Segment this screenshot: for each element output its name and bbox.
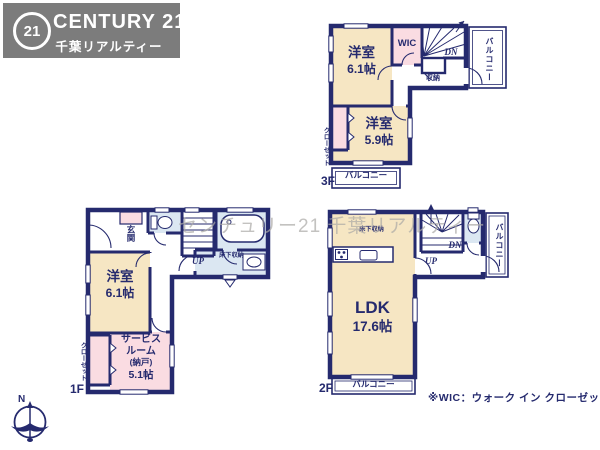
closet-label-3f: クローゼット [318,121,329,171]
floor-plan-page: 21 CENTURY 21 千葉リアルティー [0,0,600,450]
bedroom2-name-3f: 洋室 [348,116,410,132]
up-label-1f: UP [185,256,211,266]
bedroom1-name-3f: 洋室 [331,45,392,61]
floor-plan-3f: WIC DN 収納 洋室 6.1帖 洋室 5.9帖 バルコニー クローゼット バ… [318,18,518,198]
storage-label-3f: 収納 [418,75,448,83]
sink-icon [360,251,377,261]
bedroom1-size-3f: 6.1帖 [331,63,392,77]
down-label-2f: DN [442,240,468,250]
closet-area-3f [331,107,348,150]
closet-label-1f: クローゼット [75,335,86,387]
compass-north-label: N [18,394,25,405]
floor-storage-label-2f: 床下収納 [358,226,385,233]
balcony-bottom-label-2f: バルコニー [332,380,415,390]
wic-note: ※WIC：ウォーク イン クローゼット [428,390,598,405]
floor-label-1f: 1F [65,383,89,397]
kitchen-counter-icon [333,247,393,262]
floor-label-3f: 3F [316,175,340,189]
sink-icon-1f [243,254,265,270]
entrance-label: 玄関 [123,216,135,250]
century21-logo: 21 CENTURY 21 千葉リアルティー [3,3,180,58]
bedroom-size-1f: 6.1帖 [90,287,150,301]
balcony-right-label-3f: バルコニー [480,34,494,84]
service-room-line1: サービス [110,334,172,346]
closet-area-1f [90,335,110,385]
floor-plan-1f: 玄関 UP 床下収納 洋室 6.1帖 サービス ルーム (納戸) 5.1帖 クロ… [55,195,285,410]
wic-label: WIC [392,39,422,50]
balcony-right-label-2f: バルコニー [490,218,504,272]
company-name: 千葉リアルティー [49,36,169,55]
seal-number: 21 [24,23,41,40]
compass-drawing [8,396,54,448]
balcony-bottom-label-3f: バルコニー [332,171,400,181]
bedroom2-size-3f: 5.9帖 [348,134,410,148]
brand-name: CENTURY 21 [53,11,186,34]
bathtub-icon [221,215,264,242]
service-room-line3: (納戸) [110,358,172,368]
ldk-size-label: 17.6帖 [330,319,415,335]
ldk-area [330,212,415,377]
floor-plan-2f: 床下収納 DN UP LDK 17.6帖 バルコニー バルコニー 2F [318,200,528,405]
century21-seal-icon: 21 [13,12,51,50]
toilet-icon-2f [468,213,479,233]
service-room-line2: ルーム [110,346,172,358]
storage-box-3f [422,58,445,73]
toilet-icon-1f [151,216,172,229]
ldk-name-label: LDK [330,298,415,318]
bedroom-name-1f: 洋室 [90,269,150,285]
down-label-3f: DN [438,47,464,57]
compass-north-icon: N [8,396,54,448]
up-label-2f: UP [418,256,444,266]
back-door-marker [225,280,235,287]
stair-arrow-2f [428,204,434,210]
floor-label-2f: 2F [314,382,338,396]
floor-storage-label-1f: 床下収納 [218,252,245,259]
service-room-line4: 5.1帖 [110,369,172,381]
